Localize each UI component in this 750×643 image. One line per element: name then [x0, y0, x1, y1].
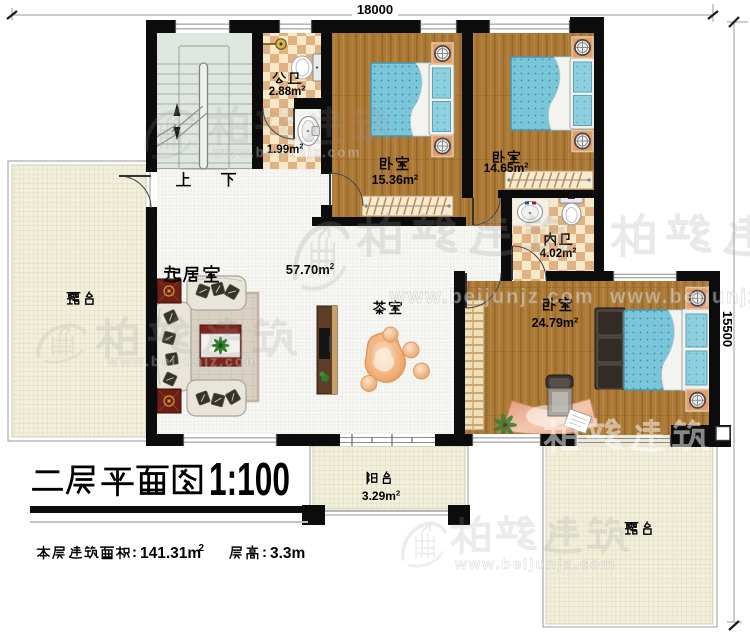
svg-text:www.beijunjz.com: www.beijunjz.com — [454, 556, 616, 573]
svg-text:www.beijunjz.com: www.beijunjz.com — [212, 145, 362, 160]
svg-text:18000: 18000 — [357, 2, 393, 17]
svg-text:1:100: 1:100 — [209, 453, 290, 505]
svg-text:www.beijunjz.com: www.beijunjz.com — [609, 286, 750, 308]
svg-text:2: 2 — [199, 543, 205, 554]
svg-text:24.79m2: 24.79m2 — [532, 315, 579, 330]
svg-text:3.29m2: 3.29m2 — [362, 488, 400, 503]
svg-text:www.beijunjz.com: www.beijunjz.com — [389, 286, 595, 308]
svg-text::: : — [262, 544, 267, 561]
svg-text:www.beijunjz.com: www.beijunjz.com — [106, 353, 260, 369]
svg-text::: : — [132, 544, 137, 561]
svg-text:15500: 15500 — [720, 311, 735, 347]
svg-text:15.36m2: 15.36m2 — [372, 172, 419, 187]
svg-text:141.31m: 141.31m — [140, 545, 201, 562]
svg-text:3.3m: 3.3m — [270, 545, 305, 562]
svg-text:14.65m2: 14.65m2 — [484, 160, 529, 175]
svg-text:2.88m2: 2.88m2 — [269, 85, 306, 98]
